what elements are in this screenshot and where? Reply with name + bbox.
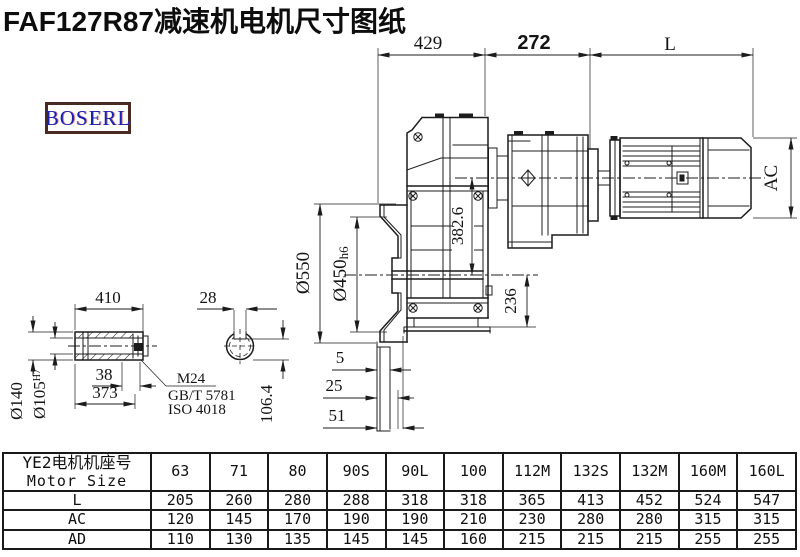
dim-shaft-bore: Ø105H7 — [30, 369, 49, 419]
engineering-drawing: 429 272 L — [0, 0, 800, 452]
dim-236-group: 236 — [488, 275, 536, 327]
table-cell: 255 — [679, 530, 738, 549]
mounting-foot — [377, 336, 403, 431]
table-cell: 130 — [210, 530, 269, 549]
dim-motor-diameter: AC — [761, 165, 782, 191]
dim-272: 272 — [517, 32, 550, 54]
table-row-label: AD — [3, 530, 151, 549]
table-header-cell: YE2电机机座号Motor Size — [3, 453, 151, 491]
table-header-line1: YE2电机机座号 — [4, 454, 150, 472]
table-cell: 160 — [444, 530, 503, 549]
dim-L: L — [664, 34, 676, 55]
table-col-header: 160L — [737, 453, 796, 491]
table-cell: 190 — [386, 510, 445, 529]
table-header-row: YE2电机机座号Motor Size63718090S90L100112M132… — [3, 453, 796, 491]
table-row-label: L — [3, 491, 151, 510]
table-col-header: 132M — [620, 453, 679, 491]
table-col-header: 71 — [210, 453, 269, 491]
thread-note-iso: ISO 4018 — [168, 402, 226, 418]
table-cell: 145 — [386, 530, 445, 549]
dim-offset-51: 51 — [329, 406, 346, 425]
table-cell: 135 — [268, 530, 327, 549]
shaft-end-bolt — [134, 343, 143, 351]
table-col-header: 90L — [386, 453, 445, 491]
table-col-header: 80 — [268, 453, 327, 491]
table-col-header: 112M — [503, 453, 562, 491]
table-cell: 145 — [327, 530, 386, 549]
table-cell: 452 — [620, 491, 679, 510]
dim-offsets-group: 5 25 51 — [323, 348, 424, 428]
output-flange — [380, 205, 407, 342]
table-cell: 318 — [444, 491, 503, 510]
dim-offset-25: 25 — [326, 376, 343, 395]
table-cell: 280 — [268, 491, 327, 510]
dim-shaft-od: Ø140 — [7, 382, 26, 420]
table-cell: 524 — [679, 491, 738, 510]
table-cell: 190 — [327, 510, 386, 529]
table-cell: 365 — [503, 491, 562, 510]
table-cell: 280 — [620, 510, 679, 529]
table-col-header: 63 — [151, 453, 210, 491]
dim-end-offset: 38 — [96, 365, 113, 384]
table-cell: 210 — [444, 510, 503, 529]
top-extension-lines — [378, 48, 753, 203]
page: FAF127R87减速机电机尺寸图纸 BOSERL — [0, 0, 800, 557]
table-cell: 215 — [561, 530, 620, 549]
table-cell: 145 — [210, 510, 269, 529]
table-row-label: AC — [3, 510, 151, 529]
thread-note-m24: M24 — [177, 371, 206, 387]
table-cell: 315 — [679, 510, 738, 529]
table-cell: 315 — [737, 510, 796, 529]
table-col-header: 90S — [327, 453, 386, 491]
table-cell: 215 — [620, 530, 679, 549]
housing-top-tab — [435, 114, 444, 118]
table-cell: 110 — [151, 530, 210, 549]
table-col-header: 100 — [444, 453, 503, 491]
dim-flange-diameter: Ø550 — [293, 252, 314, 294]
table-cell: 318 — [386, 491, 445, 510]
shaft-detail-view: 410 Ø140 Ø105H7 38 373 — [7, 288, 236, 420]
table-col-header: 160M — [679, 453, 738, 491]
dim-shaft-length: 410 — [95, 288, 121, 307]
table-header-line2: Motor Size — [4, 473, 150, 490]
dim-450-group: Ø450h6 — [330, 217, 387, 332]
table-row: AC120145170190190210230280280315315 — [3, 510, 796, 529]
table-cell: 205 — [151, 491, 210, 510]
table-cell: 288 — [327, 491, 386, 510]
table-cell: 170 — [268, 510, 327, 529]
motor-adapter — [489, 131, 611, 248]
table-cell: 215 — [503, 530, 562, 549]
dim-key-depth: 106.4 — [257, 384, 276, 423]
table-cell: 280 — [561, 510, 620, 529]
table-cell: 547 — [737, 491, 796, 510]
table-cell: 230 — [503, 510, 562, 529]
table-cell: 120 — [151, 510, 210, 529]
dim-offset-5: 5 — [336, 348, 345, 367]
motor-size-table: YE2电机机座号Motor Size63718090S90L100112M132… — [2, 452, 797, 550]
dim-center-to-base: 236 — [501, 288, 520, 314]
table-cell: 413 — [561, 491, 620, 510]
dim-axis-distance: 382.6 — [448, 207, 467, 245]
dim-spigot-diameter: Ø450h6 — [330, 246, 351, 302]
table-row: L205260280288318318365413452524547 — [3, 491, 796, 510]
table-col-header: 132S — [561, 453, 620, 491]
dim-382-group: 382.6 — [448, 178, 474, 275]
main-view: 429 272 L — [293, 32, 797, 431]
table-cell: 255 — [737, 530, 796, 549]
dim-429: 429 — [414, 33, 443, 54]
table-row: AD110130135145145160215215215255255 — [3, 530, 796, 549]
dim-bore-depth: 373 — [92, 383, 118, 402]
housing-top-tab — [459, 114, 473, 118]
dim-key-width: 28 — [200, 288, 217, 307]
gearbox-housing — [392, 114, 492, 343]
table-cell: 260 — [210, 491, 269, 510]
